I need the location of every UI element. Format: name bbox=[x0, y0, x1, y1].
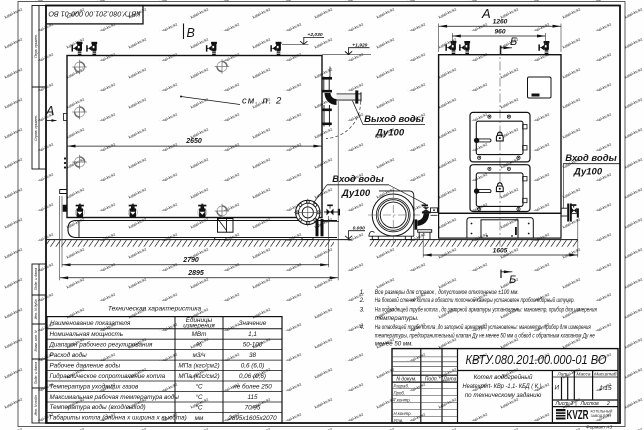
svg-text:МПа (кгс/см2): МПа (кгс/см2) bbox=[178, 363, 219, 370]
svg-text:+1,920: +1,920 bbox=[352, 43, 367, 49]
svg-text:МВт: МВт bbox=[192, 331, 207, 338]
svg-text:Номинальная мощность: Номинальная мощность bbox=[50, 331, 124, 338]
svg-text:1260: 1260 bbox=[493, 19, 508, 26]
svg-text:Значение: Значение bbox=[239, 320, 267, 327]
svg-text:2650: 2650 bbox=[185, 138, 202, 145]
svg-text:Вход воды: Вход воды bbox=[565, 153, 616, 164]
svg-text:960: 960 bbox=[494, 29, 505, 36]
svg-text:Взам. инв. N: Взам. инв. N bbox=[34, 330, 38, 351]
svg-text:Выход воды: Выход воды bbox=[364, 114, 424, 125]
svg-text:38: 38 bbox=[249, 352, 257, 359]
svg-text:Дата: Дата bbox=[442, 376, 456, 382]
svg-text:Инв. N дубл.: Инв. N дубл. bbox=[34, 299, 38, 320]
svg-text:КВТУ.080.201.00.000-01 ВО: КВТУ.080.201.00.000-01 ВО bbox=[466, 353, 607, 367]
svg-text:2790: 2790 bbox=[182, 257, 199, 264]
svg-text:Heatexpert- КВр -1,1- КБД ( К: Heatexpert- КВр -1,1- КБД ( К ) bbox=[463, 383, 542, 390]
svg-text:1:15: 1:15 bbox=[599, 385, 612, 392]
svg-text:На боковой стенке котла в обла: На боковой стенке котла в области топочн… bbox=[375, 297, 575, 304]
svg-text:Расход воды: Расход воды bbox=[50, 351, 88, 359]
svg-text:70/95: 70/95 bbox=[245, 404, 261, 411]
svg-text:Проб.: Проб. bbox=[394, 390, 406, 395]
svg-text:измерения: измерения bbox=[183, 323, 215, 330]
svg-text:Б: Б bbox=[510, 36, 517, 48]
svg-text:Температура воды (вход/выход): Температура воды (вход/выход) bbox=[50, 403, 146, 411]
svg-text:менее 50 мм.: менее 50 мм. bbox=[375, 341, 413, 348]
svg-text:температуры.: температуры. bbox=[375, 315, 419, 322]
svg-text:Подп. и дата: Подп. и дата bbox=[34, 362, 38, 385]
svg-text:3.: 3. bbox=[360, 306, 365, 313]
svg-text:Ду100: Ду100 bbox=[375, 128, 405, 139]
svg-text:Разраб.: Разраб. bbox=[394, 383, 410, 388]
svg-text:N докум.: N докум. bbox=[396, 376, 416, 382]
svg-text:1,1: 1,1 bbox=[248, 331, 257, 338]
svg-text:И: И bbox=[555, 385, 560, 392]
svg-text:А: А bbox=[481, 6, 491, 21]
svg-text:0,6 (6,0): 0,6 (6,0) bbox=[241, 363, 264, 370]
svg-text:Габариты котла (длинна х ширин: Габариты котла (длинна х ширина х высота… bbox=[50, 414, 187, 422]
svg-text:Гидравлическое сопротивление к: Гидравлическое сопротивление котла bbox=[50, 372, 166, 380]
svg-text:0,06 (0,6): 0,06 (0,6) bbox=[239, 373, 266, 380]
svg-text:Формат А3: Формат А3 bbox=[586, 424, 613, 430]
svg-text:Наименование показателя: Наименование показателя bbox=[50, 320, 131, 327]
svg-text:МПа (кгс/см2): МПа (кгс/см2) bbox=[178, 373, 219, 380]
svg-text:Перв. примен.: Перв. примен. bbox=[34, 34, 38, 58]
svg-text:На отводящей трубе котла ,до з: На отводящей трубе котла ,до запорной ар… bbox=[375, 324, 592, 331]
svg-text:2895х1605х2070: 2895х1605х2070 bbox=[227, 415, 277, 422]
svg-text:2895: 2895 bbox=[187, 270, 204, 277]
svg-text:Масштаб: Масштаб bbox=[594, 371, 617, 377]
svg-text:не более 250: не более 250 bbox=[233, 383, 272, 391]
svg-text:Подп. и дата: Подп. и дата bbox=[34, 268, 38, 291]
svg-text:Инв. N подл.: Инв. N подл. bbox=[34, 394, 38, 415]
svg-text:°С: °С bbox=[195, 393, 203, 401]
svg-text:Т.контр.: Т.контр. bbox=[394, 397, 411, 402]
svg-text:+2,030: +2,030 bbox=[308, 32, 323, 38]
svg-text:Ду100: Ду100 bbox=[573, 167, 603, 178]
svg-text:Все размеры для справок , допу: Все размеры для справок , допустимое отк… bbox=[375, 289, 519, 296]
svg-text:А: А bbox=[45, 104, 54, 118]
svg-text:ЗАВОД РЭП: ЗАВОД РЭП bbox=[591, 414, 612, 418]
svg-text:50-100: 50-100 bbox=[243, 342, 263, 349]
svg-text:по техническому заданию: по техническому заданию bbox=[465, 392, 542, 399]
svg-text:Лист: Лист bbox=[555, 401, 569, 407]
svg-text:Ду100: Ду100 bbox=[341, 188, 371, 199]
svg-text:115: 115 bbox=[247, 394, 258, 401]
svg-text:KVZR: KVZR bbox=[567, 407, 589, 422]
svg-text:см. п. 2: см. п. 2 bbox=[242, 96, 282, 107]
svg-text:Подп.: Подп. bbox=[425, 376, 438, 382]
svg-text:Диапазон рабочего регулировани: Диапазон рабочего регулирования bbox=[49, 340, 153, 348]
svg-text:2: 2 bbox=[606, 401, 610, 407]
svg-text:Техническая характеристика: Техническая характеристика bbox=[108, 306, 202, 313]
svg-text:Спрaв. примен.: Спрaв. примен. bbox=[34, 115, 38, 141]
svg-text:м3/ч: м3/ч bbox=[193, 352, 207, 359]
svg-text:Лит.: Лит. bbox=[556, 371, 568, 377]
svg-text:На подводящей трубе котла ,: На подводящей трубе котла , до запорной … bbox=[375, 306, 598, 313]
svg-text:Масса: Масса bbox=[576, 371, 591, 377]
svg-text:КВТУ.080.201.00.000-01 ВО: КВТУ.080.201.00.000-01 ВО bbox=[48, 9, 140, 18]
svg-text:Вход воды: Вход воды bbox=[332, 174, 383, 185]
svg-text:°С: °С bbox=[195, 383, 203, 391]
svg-text:4.: 4. bbox=[360, 324, 365, 331]
svg-text:%: % bbox=[196, 342, 202, 349]
svg-text:1: 1 bbox=[571, 401, 574, 407]
svg-text:Н.контр.: Н.контр. bbox=[394, 411, 412, 416]
svg-text:Максимальная рабочая температу: Максимальная рабочая температура воды bbox=[50, 393, 180, 401]
svg-text:Листов: Листов bbox=[580, 401, 600, 407]
svg-text:Б: Б bbox=[509, 274, 516, 286]
svg-text:мм: мм bbox=[195, 415, 204, 422]
svg-text:В: В bbox=[187, 26, 195, 40]
svg-text:Котел водогрейный: Котел водогрейный bbox=[474, 374, 533, 381]
svg-text:температуры, предохранительный: температуры, предохранительный клапан Ду… bbox=[375, 332, 595, 339]
svg-text:1.: 1. bbox=[360, 289, 365, 296]
svg-text:1605: 1605 bbox=[493, 247, 508, 254]
svg-text:2.: 2. bbox=[359, 297, 365, 304]
svg-text:°С: °С bbox=[195, 403, 203, 411]
svg-text:0.000: 0.000 bbox=[353, 226, 366, 232]
svg-text:Утв.: Утв. bbox=[394, 418, 404, 423]
svg-text:Температура уходящих газов: Температура уходящих газов bbox=[50, 382, 139, 390]
svg-text:Рабочее давление воды: Рабочее давление воды bbox=[50, 361, 121, 369]
svg-text:КОТЕЛЬНЫЙ: КОТЕЛЬНЫЙ bbox=[591, 410, 613, 414]
